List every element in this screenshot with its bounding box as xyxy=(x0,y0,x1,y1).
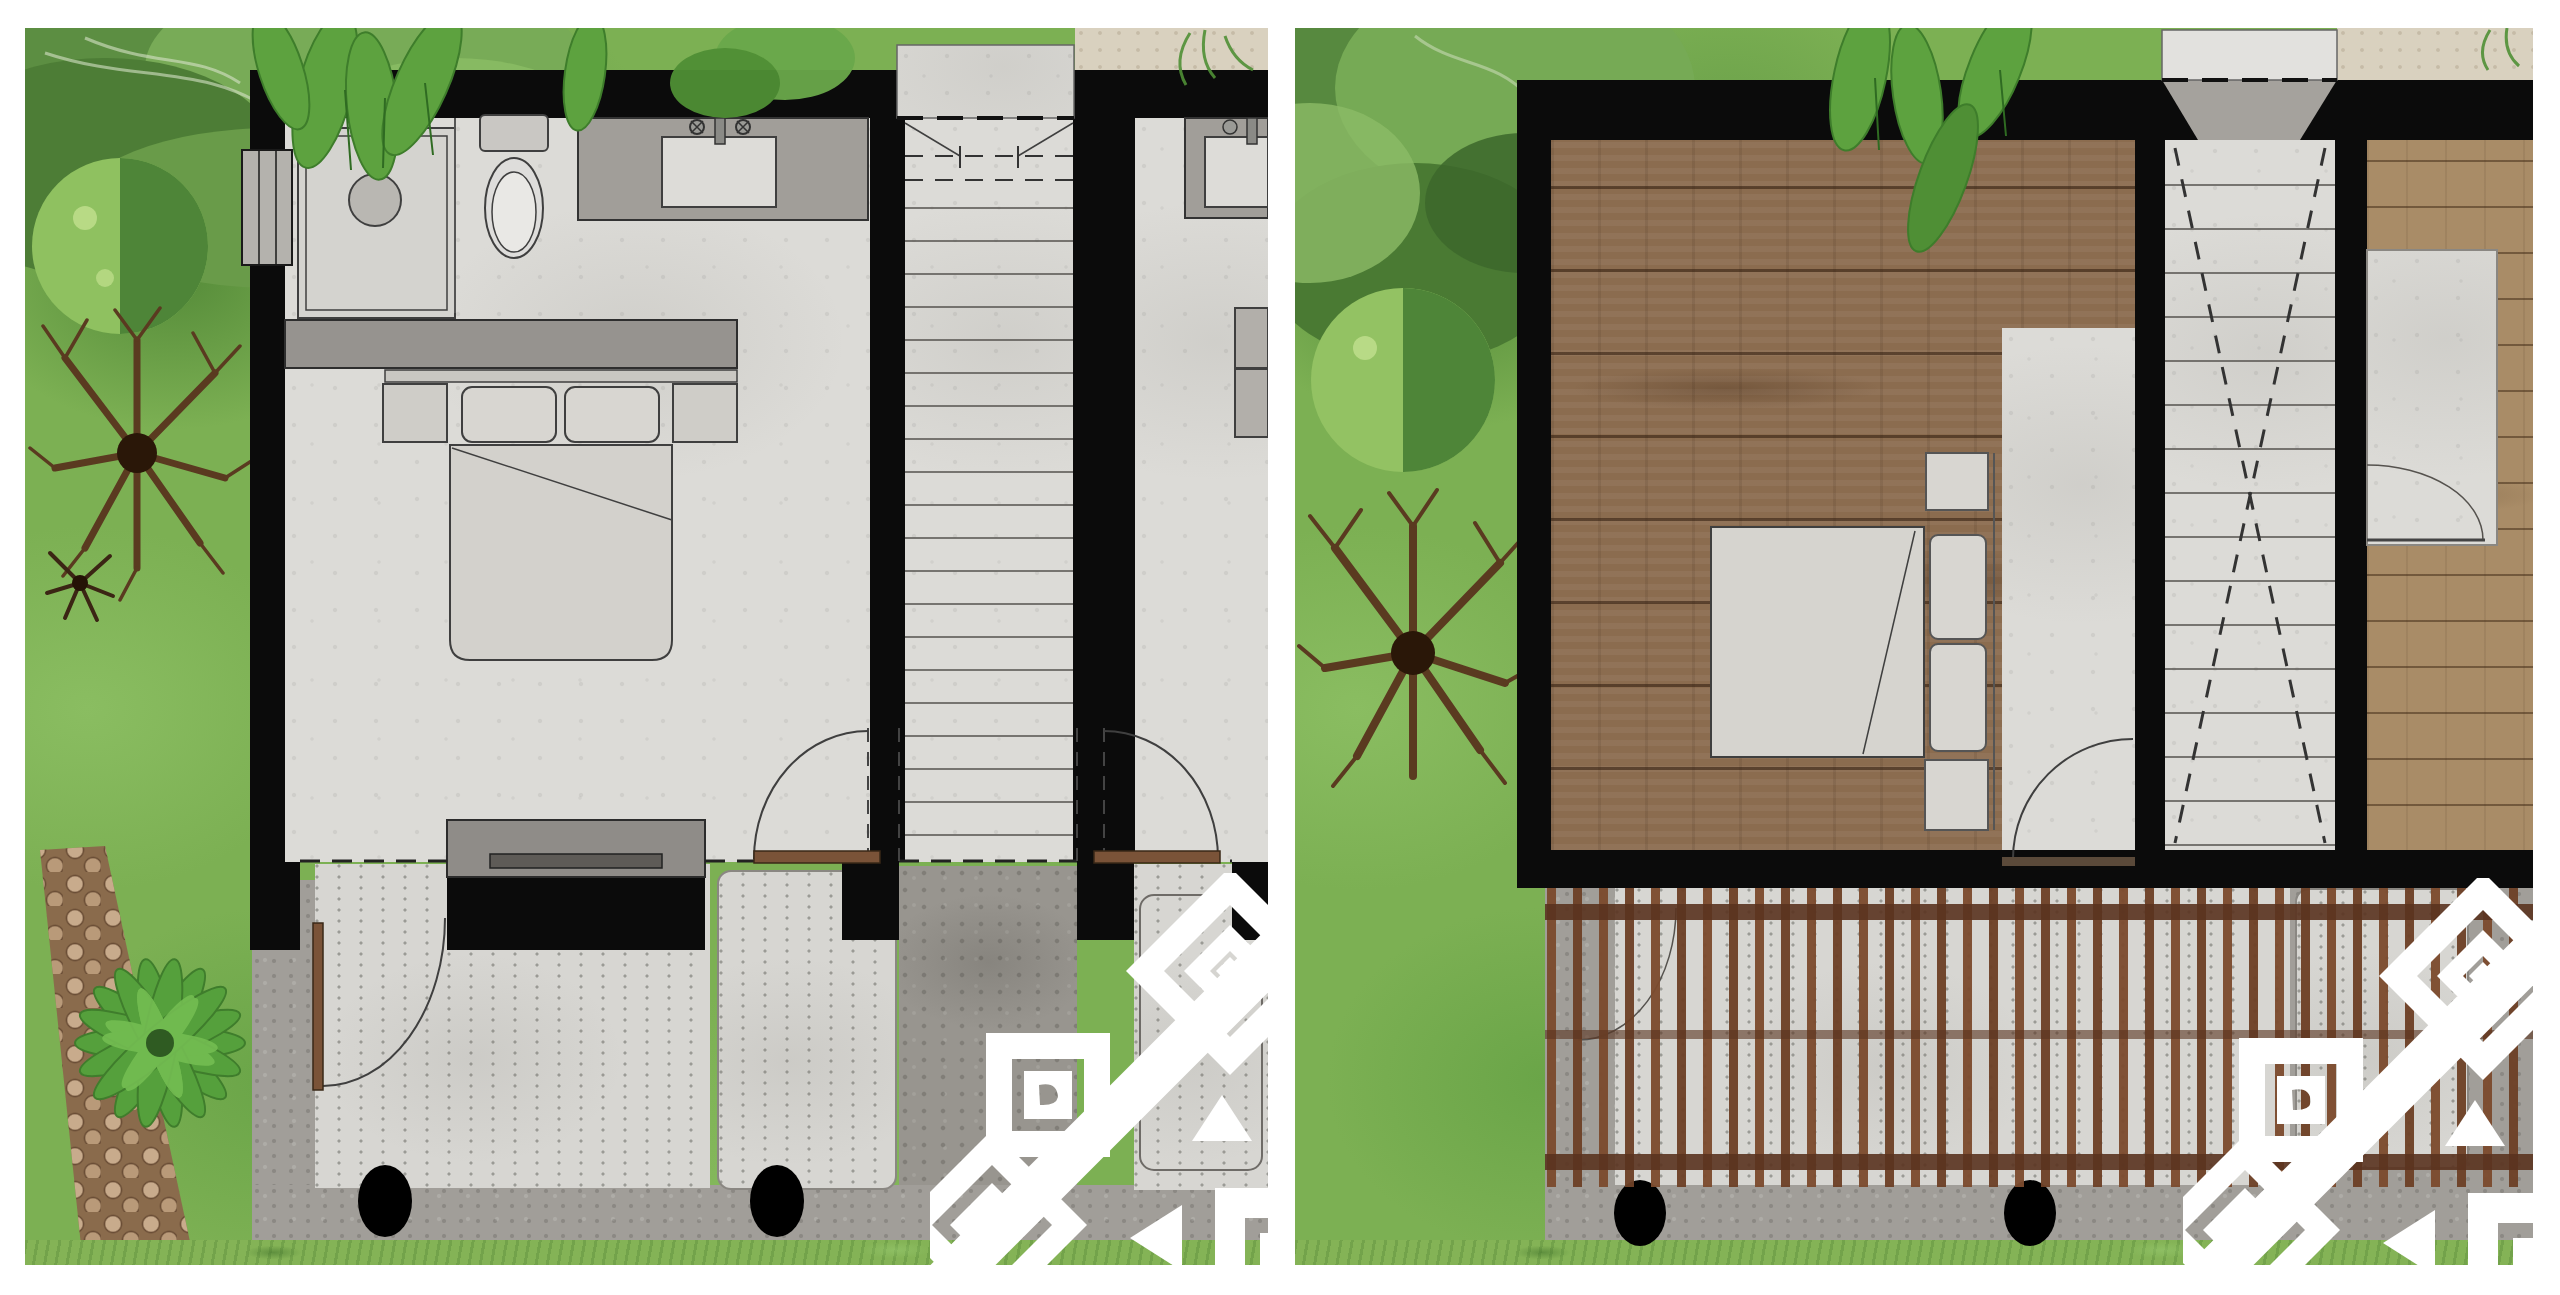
floor-plan-left xyxy=(25,28,1268,1265)
floor-plan-sheet xyxy=(0,0,2560,1295)
overhanging-leaves xyxy=(25,28,1268,1265)
floor-plan-right xyxy=(1295,28,2533,1265)
overhanging-leaves xyxy=(1295,28,2533,1265)
